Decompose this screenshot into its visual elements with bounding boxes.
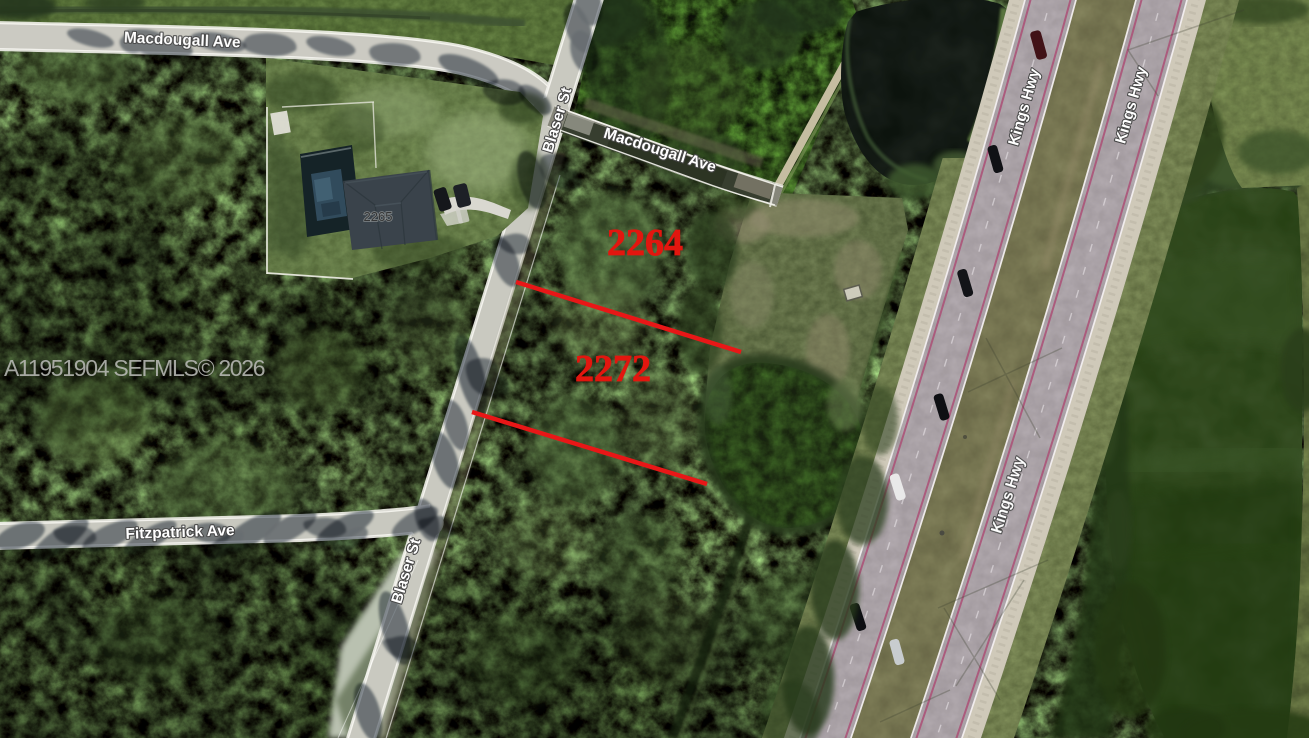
svg-text:2265: 2265 <box>364 209 393 224</box>
svg-text:2272: 2272 <box>575 348 651 390</box>
svg-text:2264: 2264 <box>607 222 683 264</box>
svg-text:A11951904 SEFMLS© 2026: A11951904 SEFMLS© 2026 <box>4 355 265 381</box>
